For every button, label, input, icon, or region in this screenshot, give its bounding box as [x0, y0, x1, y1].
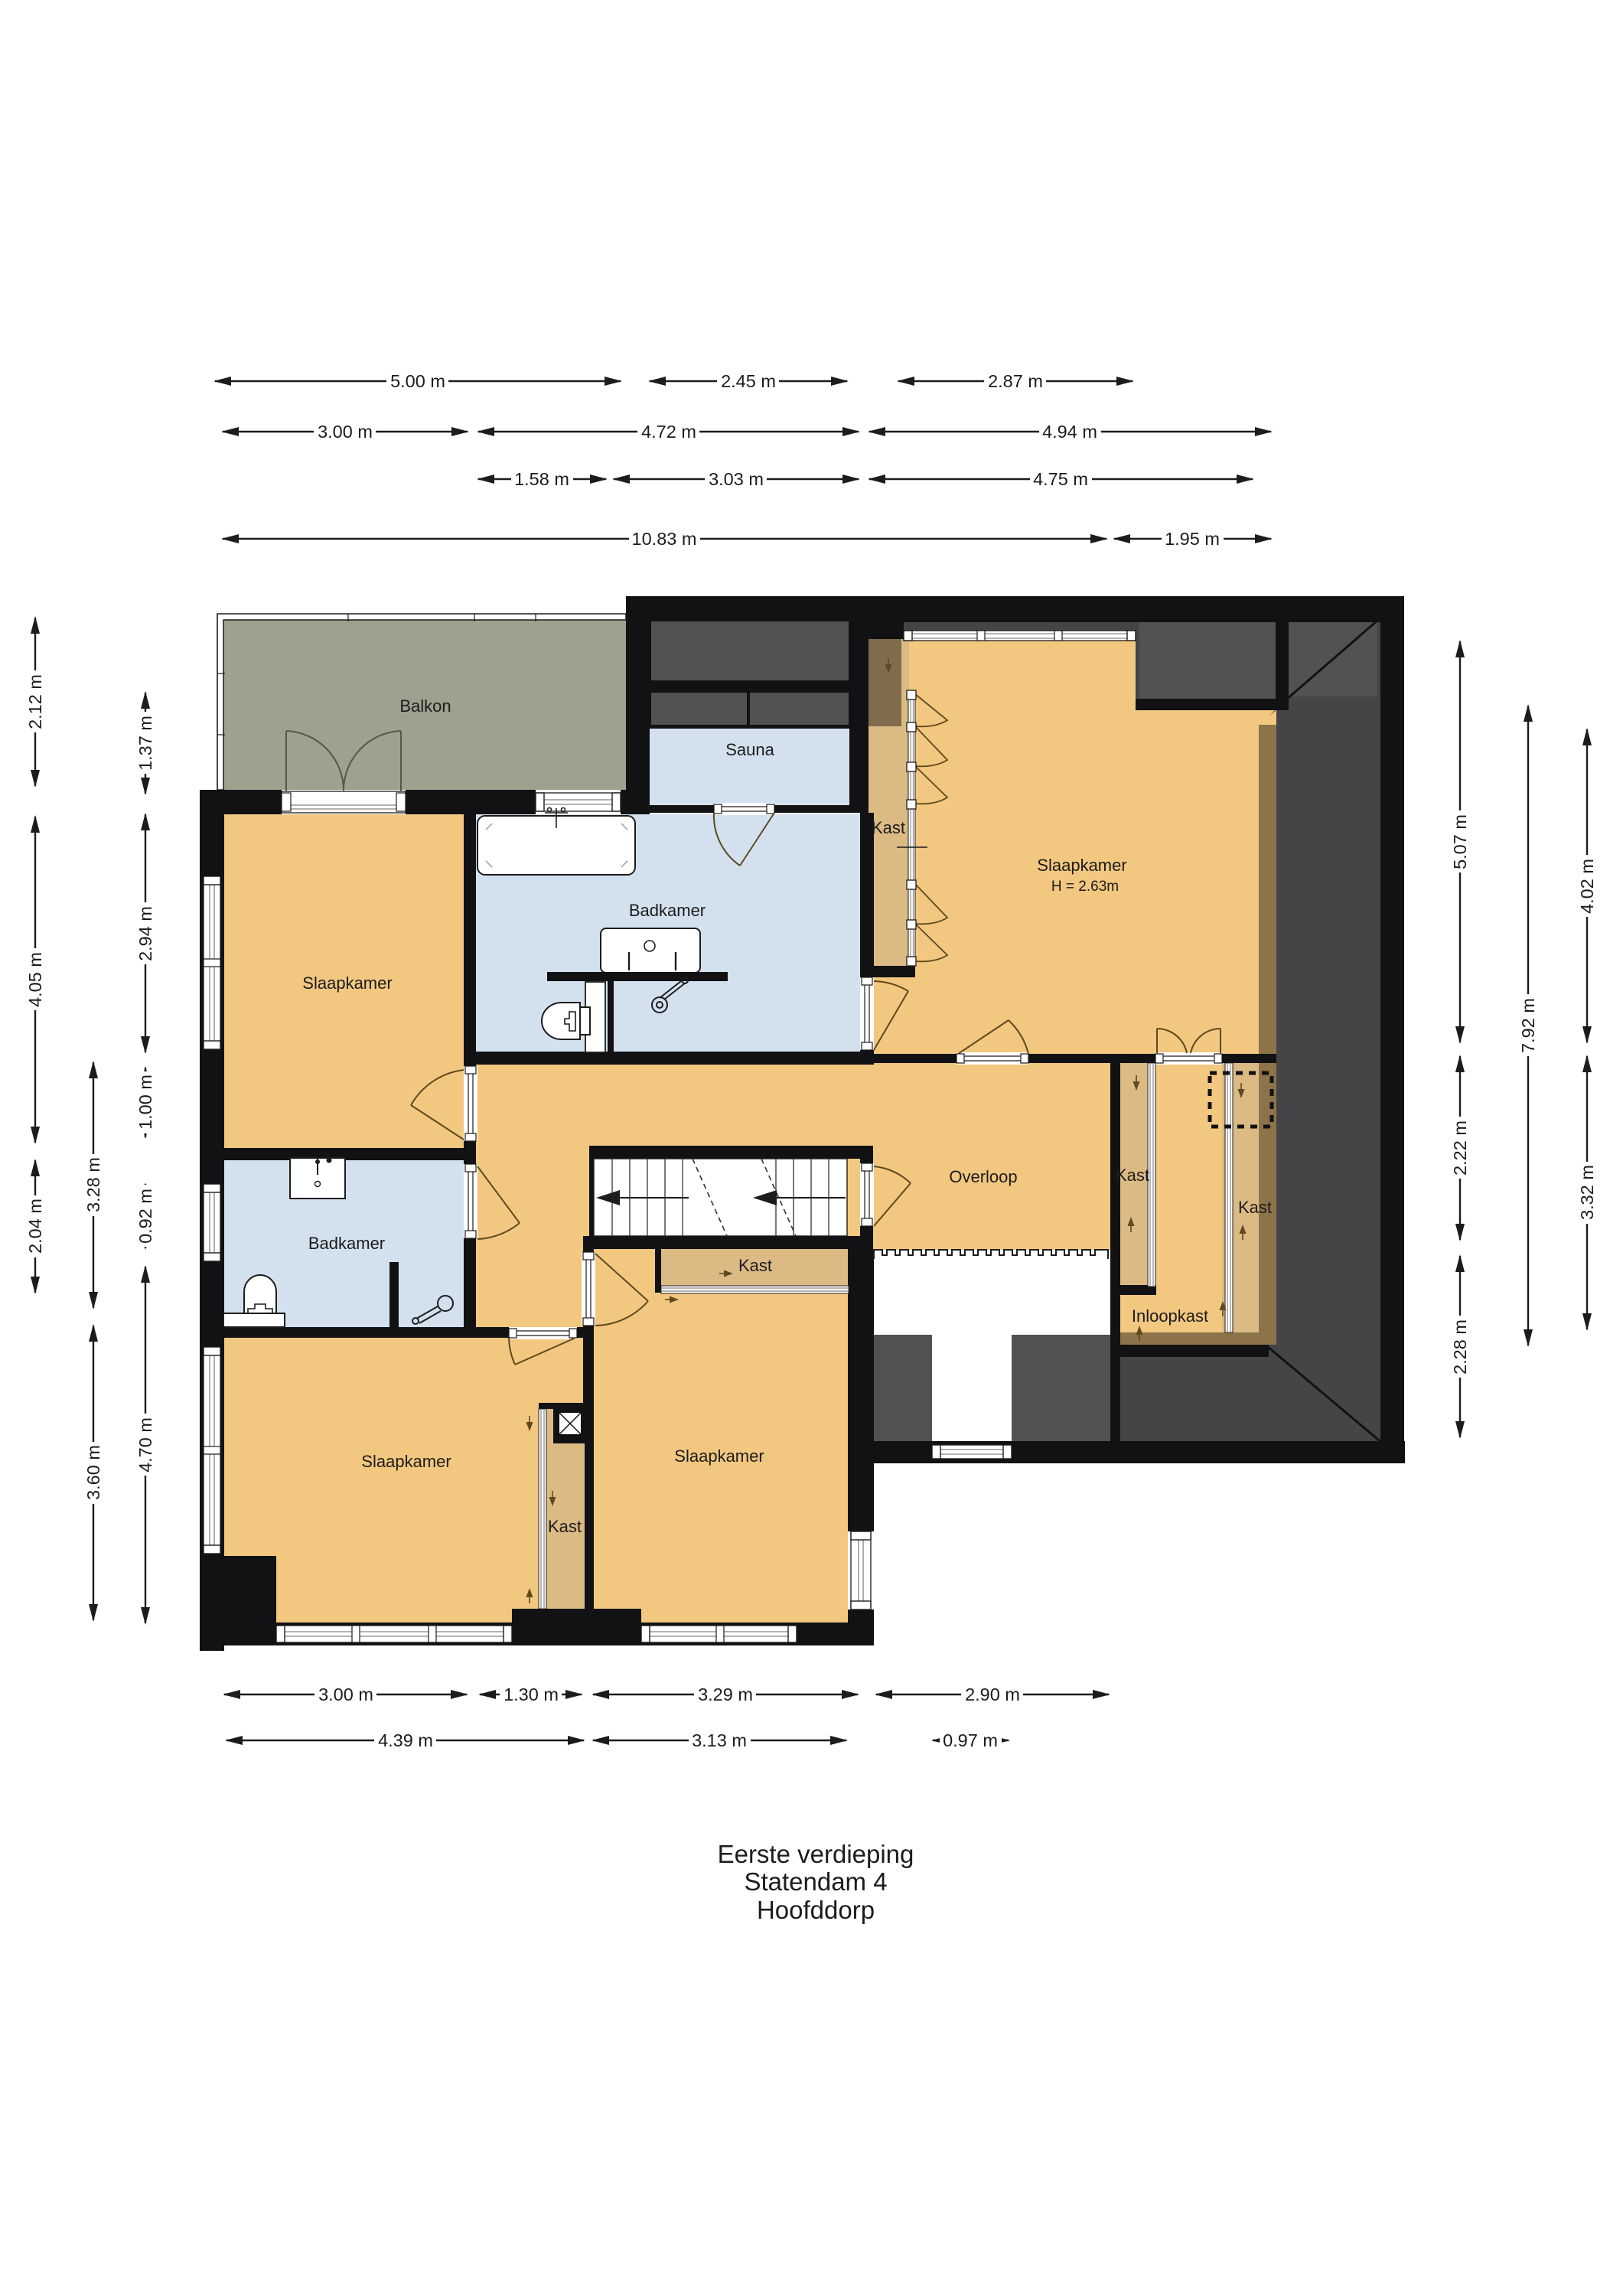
- svg-text:Slaapkamer: Slaapkamer: [674, 1446, 764, 1466]
- svg-text:5.07 m: 5.07 m: [1450, 814, 1470, 869]
- svg-text:2.90 m: 2.90 m: [965, 1684, 1020, 1704]
- svg-text:Slaapkamer: Slaapkamer: [361, 1452, 451, 1471]
- svg-text:3.60 m: 3.60 m: [83, 1445, 103, 1500]
- svg-text:0.97 m: 0.97 m: [943, 1730, 998, 1750]
- svg-text:4.94 m: 4.94 m: [1042, 422, 1097, 442]
- svg-text:2.87 m: 2.87 m: [988, 371, 1043, 391]
- svg-text:3.00 m: 3.00 m: [318, 422, 373, 442]
- svg-text:2.22 m: 2.22 m: [1450, 1120, 1470, 1176]
- svg-text:4.05 m: 4.05 m: [25, 952, 45, 1007]
- svg-text:4.70 m: 4.70 m: [135, 1417, 155, 1473]
- svg-text:Kast: Kast: [738, 1256, 772, 1275]
- svg-text:Hoofddorp: Hoofddorp: [757, 1896, 875, 1924]
- svg-text:Kast: Kast: [548, 1517, 582, 1536]
- svg-text:Inloopkast: Inloopkast: [1132, 1306, 1208, 1326]
- svg-text:4.75 m: 4.75 m: [1033, 469, 1088, 489]
- svg-text:Badkamer: Badkamer: [629, 901, 706, 920]
- svg-text:2.45 m: 2.45 m: [721, 371, 776, 391]
- svg-text:3.00 m: 3.00 m: [318, 1684, 373, 1704]
- svg-text:Badkamer: Badkamer: [308, 1234, 385, 1253]
- svg-text:Slaapkamer: Slaapkamer: [1037, 856, 1126, 875]
- svg-text:4.72 m: 4.72 m: [641, 422, 696, 442]
- svg-text:1.58 m: 1.58 m: [514, 469, 569, 489]
- svg-text:2.28 m: 2.28 m: [1450, 1319, 1470, 1375]
- svg-text:H = 2.63m: H = 2.63m: [1051, 879, 1119, 895]
- svg-text:3.28 m: 3.28 m: [83, 1157, 103, 1212]
- svg-text:3.29 m: 3.29 m: [698, 1684, 753, 1704]
- svg-text:1.95 m: 1.95 m: [1165, 529, 1220, 549]
- svg-text:2.94 m: 2.94 m: [135, 906, 155, 961]
- svg-text:Slaapkamer: Slaapkamer: [302, 974, 392, 993]
- svg-text:5.00 m: 5.00 m: [390, 371, 445, 391]
- svg-text:3.13 m: 3.13 m: [692, 1730, 747, 1750]
- svg-text:Kast: Kast: [1238, 1198, 1272, 1217]
- svg-text:Eerste verdieping: Eerste verdieping: [718, 1840, 914, 1868]
- svg-text:7.92 m: 7.92 m: [1518, 998, 1538, 1053]
- svg-text:Kast: Kast: [872, 818, 905, 837]
- svg-text:1.30 m: 1.30 m: [504, 1684, 559, 1704]
- svg-text:Overloop: Overloop: [949, 1167, 1017, 1186]
- svg-text:Statendam 4: Statendam 4: [744, 1867, 887, 1896]
- svg-text:Sauna: Sauna: [725, 740, 774, 759]
- svg-text:10.83 m: 10.83 m: [632, 529, 697, 549]
- svg-text:4.02 m: 4.02 m: [1577, 859, 1597, 914]
- svg-text:4.39 m: 4.39 m: [378, 1730, 433, 1750]
- svg-text:2.04 m: 2.04 m: [25, 1199, 45, 1254]
- svg-text:Kast: Kast: [1116, 1166, 1149, 1185]
- svg-text:3.03 m: 3.03 m: [709, 469, 764, 489]
- svg-text:2.12 m: 2.12 m: [25, 674, 45, 729]
- svg-text:1.00 m: 1.00 m: [135, 1075, 155, 1130]
- svg-text:3.32 m: 3.32 m: [1577, 1165, 1597, 1220]
- svg-text:0.92 m: 0.92 m: [135, 1189, 155, 1244]
- svg-text:Balkon: Balkon: [399, 696, 451, 716]
- svg-text:1.37 m: 1.37 m: [135, 716, 155, 771]
